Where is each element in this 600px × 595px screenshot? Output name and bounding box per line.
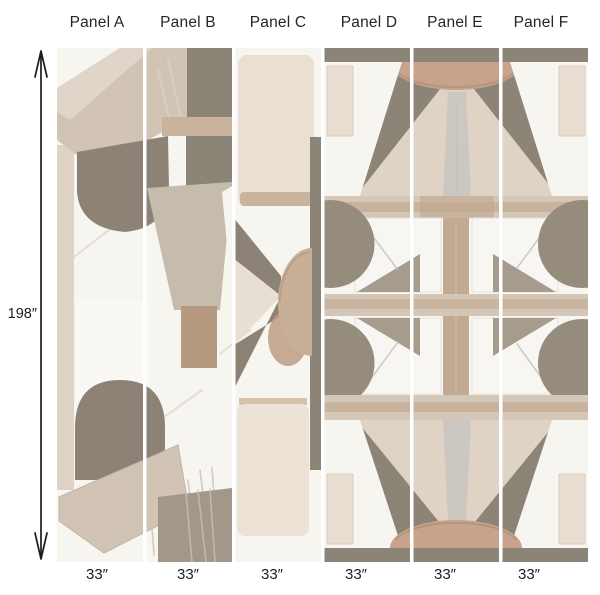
bottom-dark-band bbox=[321, 548, 588, 562]
panel-layout-diagram: Panel A Panel B Panel C Panel D Panel E … bbox=[0, 0, 600, 595]
panel-label-f: Panel F bbox=[496, 14, 586, 32]
panel-label-b: Panel B bbox=[143, 14, 233, 32]
width-label-a: 33″ bbox=[67, 566, 127, 583]
width-label-c: 33″ bbox=[242, 566, 302, 583]
width-label-f: 33″ bbox=[499, 566, 559, 583]
panel-divider bbox=[410, 48, 414, 562]
brown-stem-block bbox=[181, 306, 217, 368]
width-label-e: 33″ bbox=[415, 566, 475, 583]
width-label-b: 33″ bbox=[158, 566, 218, 583]
cream-block-topline bbox=[239, 398, 307, 405]
cream-panel-shape bbox=[238, 55, 314, 206]
wallpaper-mural-preview bbox=[57, 48, 588, 562]
tan-band-b bbox=[162, 117, 232, 136]
height-dimension-arrow bbox=[24, 44, 60, 566]
cream-block-shape bbox=[237, 404, 309, 536]
height-label: 198″ bbox=[0, 306, 37, 322]
panel-label-e: Panel E bbox=[410, 14, 500, 32]
panel-divider bbox=[321, 48, 325, 562]
corner-beige-rect bbox=[559, 66, 585, 136]
panel-divider bbox=[143, 48, 147, 562]
corner-beige-rect bbox=[327, 474, 353, 544]
panel-divider bbox=[232, 48, 236, 562]
panel-label-d: Panel D bbox=[324, 14, 414, 32]
width-label-d: 33″ bbox=[326, 566, 386, 583]
top-dark-band bbox=[321, 48, 588, 62]
panel-label-a: Panel A bbox=[52, 14, 142, 32]
corner-beige-rect bbox=[327, 66, 353, 136]
bottom-dark-block bbox=[158, 488, 232, 562]
left-section-artwork bbox=[57, 48, 321, 562]
cream-panel-fascia bbox=[240, 192, 312, 206]
panel-divider bbox=[499, 48, 503, 562]
left-strip-shape bbox=[57, 145, 74, 490]
corner-beige-rect bbox=[559, 474, 585, 544]
right-section-artwork bbox=[287, 48, 589, 562]
panel-label-c: Panel C bbox=[233, 14, 323, 32]
